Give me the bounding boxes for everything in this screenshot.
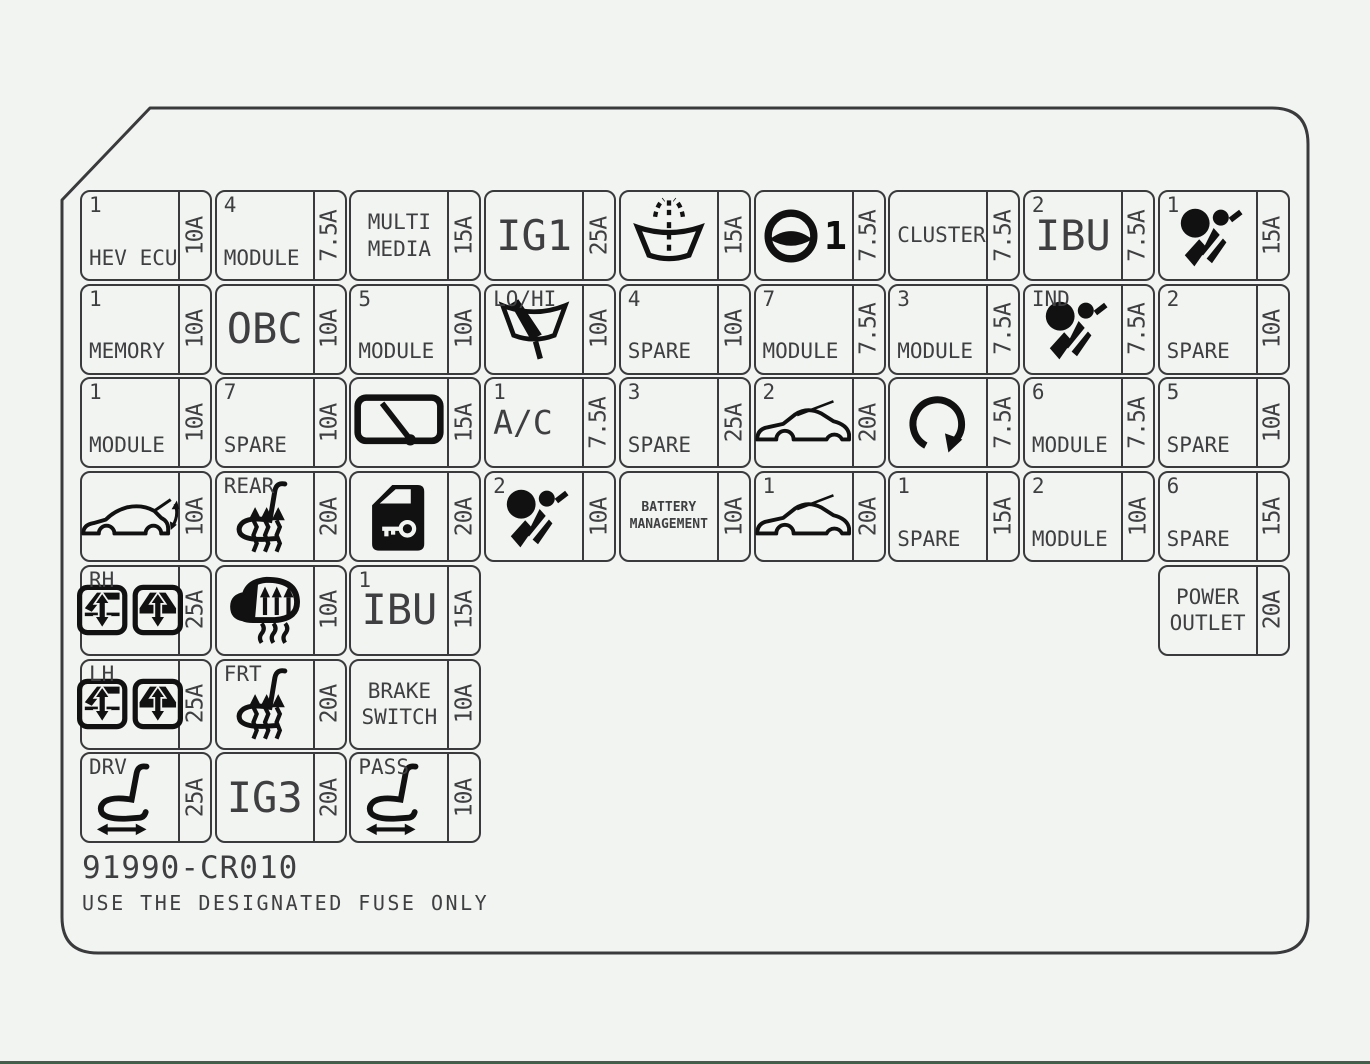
fuse-cell-r2-c4: LO/HI10A <box>484 284 616 375</box>
fuse-amp-strip: 15A <box>447 567 479 654</box>
fuse-label-area: BRAKESWITCH <box>351 661 447 748</box>
fuse-amp-value: 10A <box>1125 497 1151 536</box>
fuse-amp-value: 20A <box>451 497 477 536</box>
fuse-label: IBU <box>1035 215 1111 257</box>
fuse-cell-r3-c4: 1A/C7.5A <box>484 377 616 468</box>
fuse-tag: 7 <box>763 288 776 311</box>
fuse-cell-body <box>890 379 986 466</box>
fuse-label: SPARE <box>628 432 691 458</box>
fuse-label: MODULE <box>1032 526 1108 552</box>
fuse-label: MODULE <box>224 245 300 271</box>
fuse-cell-body <box>621 192 717 279</box>
fuse-cell-r3-c6: 220A <box>754 377 886 468</box>
fuse-tag: LH <box>89 663 114 686</box>
fuse-amp-value: 25A <box>586 216 612 255</box>
fuse-amp-strip: 10A <box>717 473 749 560</box>
fuse-label: MANAGEMENT <box>630 517 708 534</box>
fuse-amp-strip: 7.5A <box>582 379 614 466</box>
fuse-cell-r4-c6: 120A <box>754 471 886 562</box>
fuse-label-area: OBC <box>217 286 313 373</box>
power-window-icon <box>77 678 183 730</box>
fuse-tag: REAR <box>224 475 275 498</box>
fuse-cell-body: BRAKESWITCH <box>351 661 447 748</box>
fuse-cell-r4-c3: 20A <box>349 471 481 562</box>
heated-steering-icon <box>223 571 307 649</box>
fuse-label-area: CLUSTER <box>890 192 986 279</box>
fuse-amp-strip: 10A <box>313 286 345 373</box>
fuse-cell-body <box>82 473 178 560</box>
fuse-amp-value: 15A <box>721 216 747 255</box>
fuse-amp-strip: 10A <box>178 473 210 560</box>
fuse-amp-value: 15A <box>1260 216 1286 255</box>
fuse-cell-r6-c1: LH25A <box>80 659 212 750</box>
fuse-cell-body: 1SPARE <box>890 473 986 560</box>
fuse-cell-r1-c9: 115A <box>1158 190 1290 281</box>
fuse-amp-strip: 20A <box>1256 567 1288 654</box>
fuse-cell-body <box>351 473 447 560</box>
fuse-label-area: POWEROUTLET <box>1160 567 1256 654</box>
fuse-label: IBU <box>361 589 437 631</box>
fuse-tag: 1 <box>763 475 776 498</box>
fuse-amp-value: 7.5A <box>586 397 612 448</box>
fuse-cell-r5-c9: POWEROUTLET20A <box>1158 565 1290 656</box>
fuse-amp-value: 7.5A <box>990 303 1016 354</box>
fuse-cell-r6-c3: BRAKESWITCH10A <box>349 659 481 750</box>
fuse-notice: USE THE DESIGNATED FUSE ONLY <box>82 889 489 917</box>
fuse-label: POWER <box>1176 584 1239 610</box>
fuse-label: SWITCH <box>361 704 437 730</box>
fuse-cell-body: LO/HI <box>486 286 582 373</box>
fuse-amp-strip: 20A <box>852 473 884 560</box>
fuse-cell-r1-c7: CLUSTER7.5A <box>888 190 1020 281</box>
fuse-amp-value: 20A <box>317 778 343 817</box>
fuse-amp-strip: 15A <box>1256 473 1288 560</box>
fuse-amp-value: 10A <box>586 497 612 536</box>
fuse-amp-strip: 15A <box>986 473 1018 560</box>
fuse-cell-body: 1 <box>1160 192 1256 279</box>
fuse-label: SPARE <box>1167 526 1230 552</box>
fuse-icon-area <box>82 473 178 560</box>
fuse-amp-value: 15A <box>990 497 1016 536</box>
fuse-cell-r3-c5: 3SPARE25A <box>619 377 751 468</box>
fuse-cell-r3-c8: 6MODULE7.5A <box>1023 377 1155 468</box>
fuse-amp-strip: 10A <box>447 286 479 373</box>
fuse-tag: 5 <box>1167 381 1180 404</box>
fuse-cell-body: 7MODULE <box>756 286 852 373</box>
fuse-cell-body <box>351 379 447 466</box>
fuse-cell-r2-c3: 5MODULE10A <box>349 284 481 375</box>
fuse-label: BATTERY <box>641 500 696 517</box>
fuse-tag: IND <box>1032 288 1070 311</box>
fuse-amp-strip: 7.5A <box>852 192 884 279</box>
fuse-cell-r1-c6: 17.5A <box>754 190 886 281</box>
fuse-cell-body <box>217 567 313 654</box>
fuse-cell-r1-c8: 2IBU7.5A <box>1023 190 1155 281</box>
fuse-cell-r3-c1: 1MODULE10A <box>80 377 212 468</box>
fuse-amp-value: 10A <box>317 591 343 630</box>
fuse-amp-value: 10A <box>451 778 477 817</box>
fuse-tag: 4 <box>224 194 237 217</box>
fuse-cell-r2-c7: 3MODULE7.5A <box>888 284 1020 375</box>
fuse-cell-body: RH <box>82 567 178 654</box>
fuse-cell-body: 3SPARE <box>621 379 717 466</box>
fuse-box-diagram: 1HEV ECU10A4MODULE7.5AMULTIMEDIA15AIG125… <box>0 0 1370 1064</box>
fuse-cell-body: MULTIMEDIA <box>351 192 447 279</box>
fuse-amp-strip: 20A <box>447 473 479 560</box>
fuse-cell-body: 1 <box>756 473 852 560</box>
fuse-cell-r2-c9: 2SPARE10A <box>1158 284 1290 375</box>
fuse-label: IG1 <box>496 215 572 257</box>
fuse-amp-strip: 7.5A <box>986 192 1018 279</box>
fuse-cell-body: 2 <box>756 379 852 466</box>
fuse-label: MODULE <box>1032 432 1108 458</box>
fuse-cell-r6-c2: FRT20A <box>215 659 347 750</box>
fuse-cell-r2-c2: OBC10A <box>215 284 347 375</box>
fuse-label: MODULE <box>89 432 165 458</box>
fuse-amp-strip: 25A <box>717 379 749 466</box>
fuse-cell-r2-c5: 4SPARE10A <box>619 284 751 375</box>
fuse-cell-body: IG1 <box>486 192 582 279</box>
fuse-tag: 1 <box>89 381 102 404</box>
fuse-label: MODULE <box>763 338 839 364</box>
fuse-cell-body: 3MODULE <box>890 286 986 373</box>
fuse-amp-strip: 10A <box>178 286 210 373</box>
fuse-amp-value: 20A <box>856 497 882 536</box>
fuse-tag: 7 <box>224 381 237 404</box>
fuse-cell-body: DRV <box>82 754 178 841</box>
fuse-amp-value: 7.5A <box>1125 210 1151 261</box>
fuse-label: IG3 <box>227 777 303 819</box>
fuse-amp-strip: 7.5A <box>986 286 1018 373</box>
fuse-label: MEDIA <box>368 236 431 262</box>
fuse-cell-body: PASS <box>351 754 447 841</box>
fuse-cell-r5-c2: 10A <box>215 565 347 656</box>
fuse-cell-body: 1HEV ECU <box>82 192 178 279</box>
fuse-label-area: BATTERYMANAGEMENT <box>621 473 717 560</box>
fuse-icon-area <box>351 379 447 466</box>
fuse-cell-body: 6SPARE <box>1160 473 1256 560</box>
fuse-amp-strip: 20A <box>852 379 884 466</box>
fuse-tag: 2 <box>493 475 506 498</box>
fuse-cell-r4-c5: BATTERYMANAGEMENT10A <box>619 471 751 562</box>
fuse-amp-value: 25A <box>721 404 747 443</box>
icon-suffix-number: 1 <box>824 217 847 255</box>
fuse-tag: 2 <box>1032 194 1045 217</box>
fuse-label: SPARE <box>224 432 287 458</box>
fuse-cell-body: FRT <box>217 661 313 748</box>
fuse-tag: 1 <box>1167 194 1180 217</box>
fuse-amp-value: 7.5A <box>990 210 1016 261</box>
fuse-label: SPARE <box>897 526 960 552</box>
fuse-amp-value: 10A <box>1260 310 1286 349</box>
fuse-amp-value: 7.5A <box>1125 397 1151 448</box>
fuse-cell-body: 4SPARE <box>621 286 717 373</box>
fuse-cell-body: 2 <box>486 473 582 560</box>
fuse-cell-r4-c2: REAR20A <box>215 471 347 562</box>
fuse-amp-strip: 20A <box>313 754 345 841</box>
fuse-tag: FRT <box>224 663 262 686</box>
fuse-label: MULTI <box>368 209 431 235</box>
fuse-cell-r3-c3: 15A <box>349 377 481 468</box>
fuse-amp-value: 20A <box>856 404 882 443</box>
fuse-amp-value: 15A <box>1260 497 1286 536</box>
fuse-label: MODULE <box>897 338 973 364</box>
fuse-label: HEV ECU <box>89 245 178 271</box>
fuse-cell-r1-c3: MULTIMEDIA15A <box>349 190 481 281</box>
fuse-cell-body: 2IBU <box>1025 192 1121 279</box>
fuse-amp-value: 15A <box>451 404 477 443</box>
fuse-amp-value: 7.5A <box>1125 303 1151 354</box>
fuse-amp-value: 7.5A <box>317 210 343 261</box>
fuse-cell-body: 5SPARE <box>1160 379 1256 466</box>
fuse-amp-value: 25A <box>182 591 208 630</box>
fuse-tag: 6 <box>1167 475 1180 498</box>
fuse-tag: 1 <box>493 381 506 404</box>
fuse-label: OBC <box>227 308 303 350</box>
fuse-tag: 2 <box>763 381 776 404</box>
fuse-amp-strip: 7.5A <box>313 192 345 279</box>
fuse-amp-value: 10A <box>317 310 343 349</box>
fuse-tag: DRV <box>89 756 127 779</box>
fuse-amp-value: 7.5A <box>856 210 882 261</box>
fuse-amp-strip: 10A <box>178 192 210 279</box>
fuse-label: OUTLET <box>1170 610 1246 636</box>
fuse-cell-body: OBC <box>217 286 313 373</box>
fuse-cell-r4-c1: 10A <box>80 471 212 562</box>
fuse-amp-value: 15A <box>451 216 477 255</box>
fuse-label: SPARE <box>1167 432 1230 458</box>
fuse-amp-strip: 20A <box>313 473 345 560</box>
fuse-amp-strip: 7.5A <box>1121 379 1153 466</box>
fuse-label: SPARE <box>628 338 691 364</box>
footer: 91990-CR010 USE THE DESIGNATED FUSE ONLY <box>82 851 489 917</box>
fuse-tag: RH <box>89 569 114 592</box>
fuse-cell-body: 1 <box>756 192 852 279</box>
fuse-cell-body: 7SPARE <box>217 379 313 466</box>
fuse-amp-strip: 20A <box>313 661 345 748</box>
tailgate-car-icon <box>78 488 182 546</box>
fuse-amp-strip: 10A <box>1256 379 1288 466</box>
fuse-amp-strip: 10A <box>313 379 345 466</box>
fuse-amp-value: 20A <box>1260 591 1286 630</box>
fuse-label-area: IG3 <box>217 754 313 841</box>
fuse-amp-strip: 10A <box>1121 473 1153 560</box>
fuse-cell-body: 1A/C <box>486 379 582 466</box>
fuse-cell-body: 2MODULE <box>1025 473 1121 560</box>
rotate-icon <box>905 390 971 456</box>
windshield-washer-icon <box>623 196 715 276</box>
fuse-cell-r4-c7: 1SPARE15A <box>888 471 1020 562</box>
airbag-icon <box>1172 202 1244 270</box>
fuse-cell-r4-c8: 2MODULE10A <box>1023 471 1155 562</box>
part-number: 91990-CR010 <box>82 851 489 885</box>
fuse-tag: 2 <box>1032 475 1045 498</box>
fuse-label-area: MULTIMEDIA <box>351 192 447 279</box>
fuse-cell-body: IG3 <box>217 754 313 841</box>
fuse-amp-value: 10A <box>586 310 612 349</box>
fuse-cell-r7-c3: PASS10A <box>349 752 481 843</box>
fuse-cell-r1-c5: 15A <box>619 190 751 281</box>
fuse-amp-strip: 15A <box>1256 192 1288 279</box>
fuse-cell-body: REAR <box>217 473 313 560</box>
fuse-cell-body: 4MODULE <box>217 192 313 279</box>
fuse-icon-area <box>351 473 447 560</box>
fuse-cell-body: CLUSTER <box>890 192 986 279</box>
fuse-label: MODULE <box>358 338 434 364</box>
fuse-amp-value: 10A <box>182 310 208 349</box>
fuse-icon-area <box>217 567 313 654</box>
fuse-cell-r7-c2: IG320A <box>215 752 347 843</box>
fuse-amp-strip: 7.5A <box>986 379 1018 466</box>
fuse-tag: 1 <box>89 194 102 217</box>
fuse-amp-strip: 10A <box>178 379 210 466</box>
fuse-amp-strip: 25A <box>178 754 210 841</box>
fuse-amp-value: 10A <box>182 497 208 536</box>
fuse-amp-value: 25A <box>182 685 208 724</box>
fuse-tag: 2 <box>1167 288 1180 311</box>
fuse-amp-strip: 25A <box>178 661 210 748</box>
fuse-cell-r2-c6: 7MODULE7.5A <box>754 284 886 375</box>
fuse-amp-strip: 25A <box>582 192 614 279</box>
fuse-icon-area <box>890 379 986 466</box>
fuse-amp-strip: 15A <box>717 192 749 279</box>
fuse-amp-value: 20A <box>317 497 343 536</box>
fuse-cell-body: 6MODULE <box>1025 379 1121 466</box>
fuse-tag: 4 <box>628 288 641 311</box>
fuse-amp-value: 10A <box>1260 404 1286 443</box>
fuse-tag: 1 <box>89 288 102 311</box>
door-lock-key-icon <box>363 480 435 554</box>
fuse-cell-body: 5MODULE <box>351 286 447 373</box>
fuse-label: CLUSTER <box>897 222 986 248</box>
fuse-amp-strip: 10A <box>447 754 479 841</box>
fuse-tag: 3 <box>897 288 910 311</box>
fuse-label: A/C <box>493 406 553 439</box>
fuse-tag: 3 <box>628 381 641 404</box>
fuse-cell-r3-c9: 5SPARE10A <box>1158 377 1290 468</box>
fuse-amp-strip: 15A <box>447 192 479 279</box>
fuse-cell-r3-c7: 7.5A <box>888 377 1020 468</box>
fuse-cell-r1-c2: 4MODULE7.5A <box>215 190 347 281</box>
fuse-tag: 6 <box>1032 381 1045 404</box>
fuse-cell-r4-c9: 6SPARE15A <box>1158 471 1290 562</box>
fuse-label: MEMORY <box>89 338 165 364</box>
fuse-amp-strip: 7.5A <box>852 286 884 373</box>
fuse-cell-body: IND <box>1025 286 1121 373</box>
fuse-cell-r5-c1: RH25A <box>80 565 212 656</box>
fuse-amp-strip: 15A <box>447 379 479 466</box>
fuse-amp-value: 7.5A <box>990 397 1016 448</box>
fuse-cell-r1-c1: 1HEV ECU10A <box>80 190 212 281</box>
rear-wiper-icon <box>352 392 446 454</box>
fuse-amp-strip: 10A <box>313 567 345 654</box>
fuse-tag: 1 <box>358 569 371 592</box>
fuse-cell-r2-c8: IND7.5A <box>1023 284 1155 375</box>
fuse-label: BRAKE <box>368 678 431 704</box>
fuse-amp-value: 10A <box>182 216 208 255</box>
fuse-amp-strip: 10A <box>1256 286 1288 373</box>
fuse-cell-body: LH <box>82 661 178 748</box>
fuse-cell-r5-c3: 1IBU15A <box>349 565 481 656</box>
fuse-amp-value: 10A <box>451 685 477 724</box>
fuse-icon-area: 1 <box>756 192 852 279</box>
fuse-amp-strip: 10A <box>447 661 479 748</box>
fuse-amp-strip: 7.5A <box>1121 192 1153 279</box>
fuse-cell-body: POWEROUTLET <box>1160 567 1256 654</box>
fuse-amp-value: 10A <box>182 404 208 443</box>
fuse-icon-area <box>621 192 717 279</box>
fuse-amp-value: 10A <box>721 497 747 536</box>
fuse-amp-value: 15A <box>451 591 477 630</box>
fuse-amp-value: 10A <box>721 310 747 349</box>
fuse-label: SPARE <box>1167 338 1230 364</box>
fuse-amp-value: 20A <box>317 685 343 724</box>
fuse-amp-strip: 7.5A <box>1121 286 1153 373</box>
fuse-amp-value: 10A <box>317 404 343 443</box>
fuse-tag: 5 <box>358 288 371 311</box>
steering-wheel-icon <box>760 205 822 267</box>
fuse-label-area: IG1 <box>486 192 582 279</box>
fuse-amp-value: 7.5A <box>856 303 882 354</box>
fuse-cell-r4-c4: 210A <box>484 471 616 562</box>
fuse-cell-body: 1MODULE <box>82 379 178 466</box>
fuse-cell-body: 1MEMORY <box>82 286 178 373</box>
fuse-cell-r1-c4: IG125A <box>484 190 616 281</box>
airbag-icon <box>498 483 570 551</box>
fuse-cell-r2-c1: 1MEMORY10A <box>80 284 212 375</box>
fuse-cell-body: 2SPARE <box>1160 286 1256 373</box>
fuse-cell-r7-c1: DRV25A <box>80 752 212 843</box>
fuse-tag: PASS <box>358 756 409 779</box>
fuse-amp-strip: 25A <box>178 567 210 654</box>
fuse-tag: 1 <box>897 475 910 498</box>
fuse-tag: LO/HI <box>493 288 556 311</box>
fuse-amp-strip: 10A <box>582 286 614 373</box>
fuse-cell-body: 1IBU <box>351 567 447 654</box>
fuse-amp-strip: 10A <box>582 473 614 560</box>
fuse-cell-body: BATTERYMANAGEMENT <box>621 473 717 560</box>
fuse-amp-value: 25A <box>182 778 208 817</box>
power-window-icon <box>77 584 183 636</box>
fuse-amp-strip: 10A <box>717 286 749 373</box>
fuse-cell-r3-c2: 7SPARE10A <box>215 377 347 468</box>
fuse-amp-value: 10A <box>451 310 477 349</box>
